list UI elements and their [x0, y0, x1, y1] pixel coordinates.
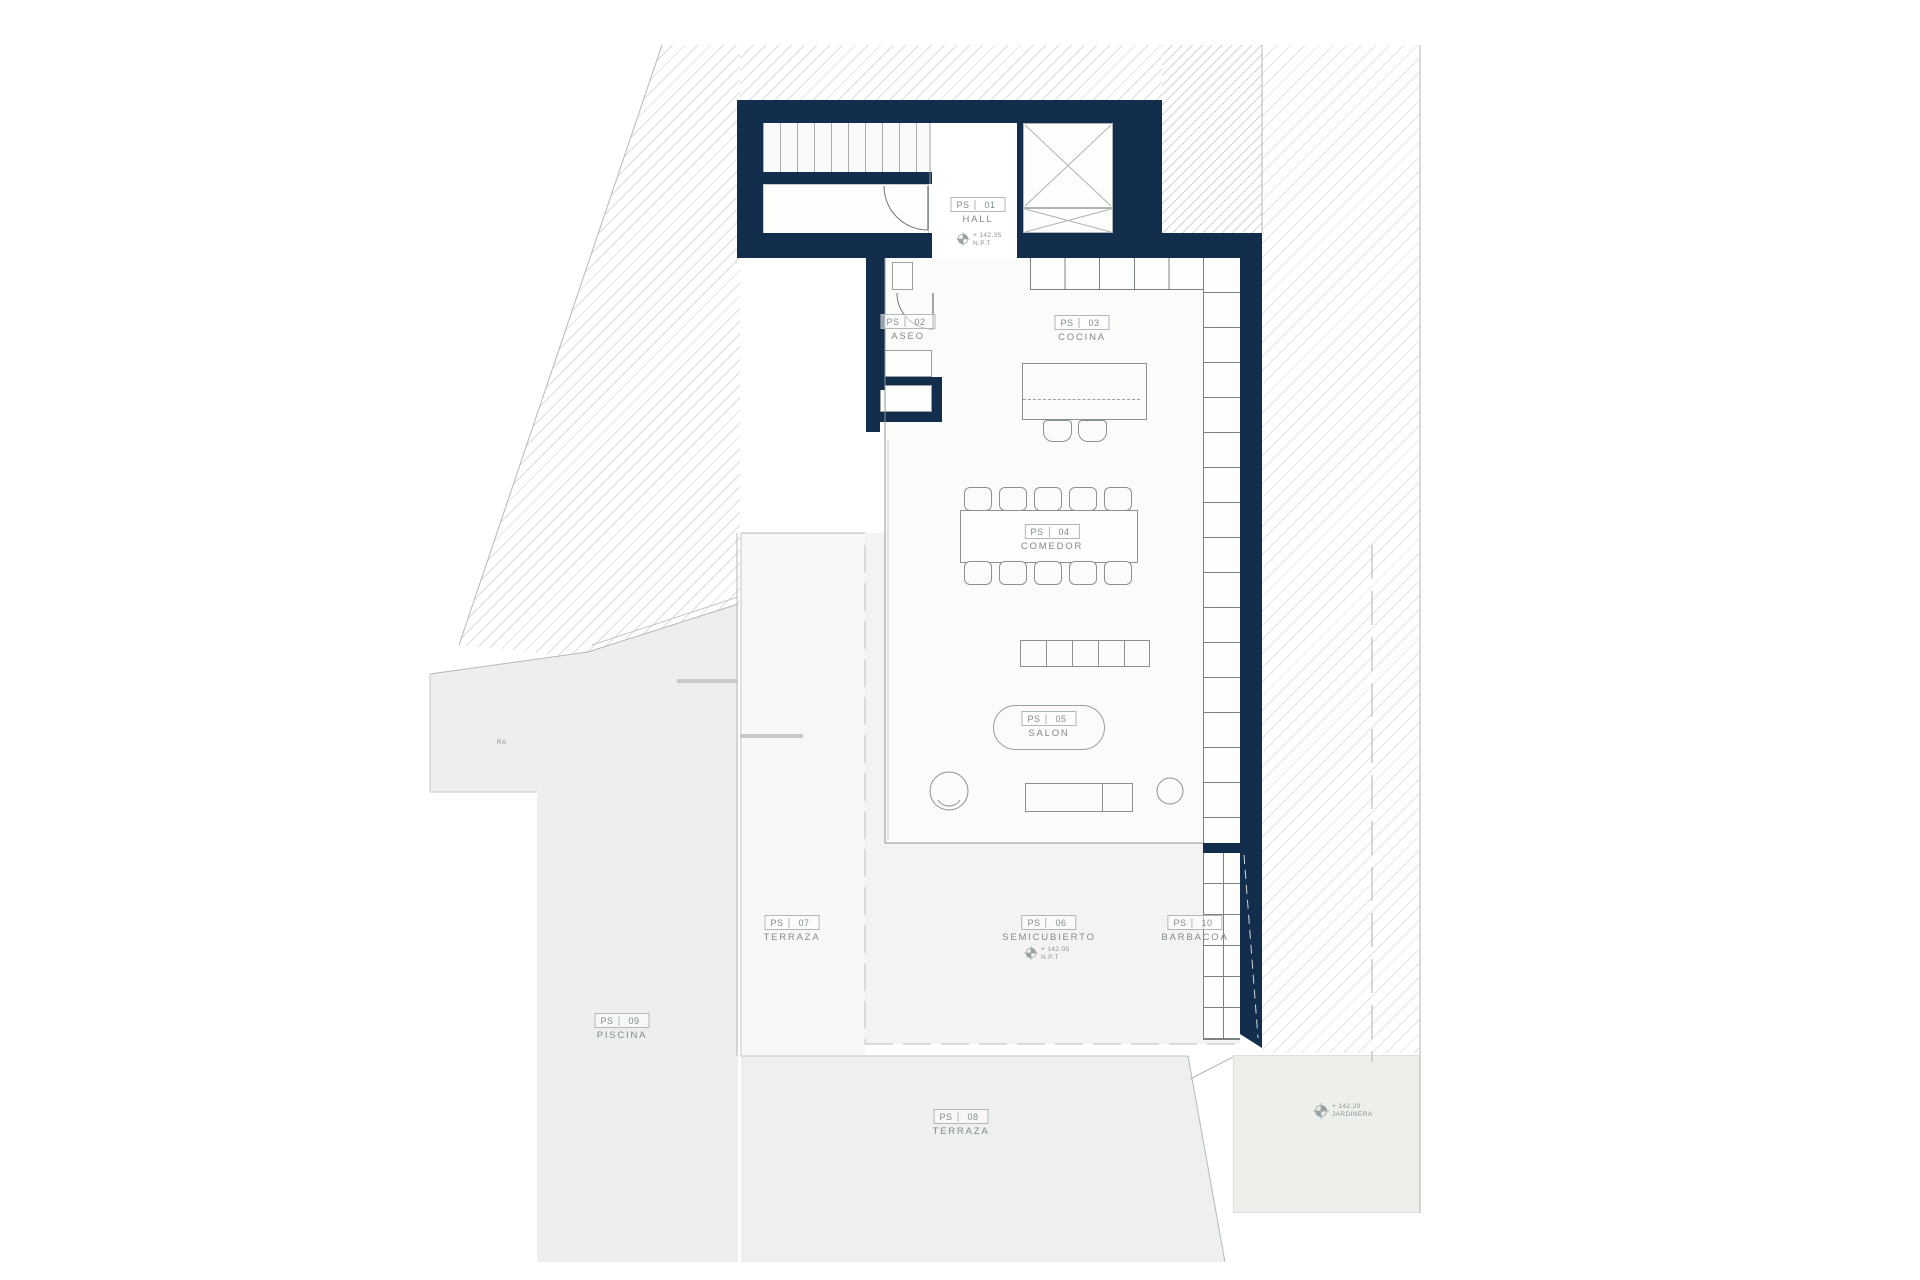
tag-number: 08	[959, 1112, 988, 1122]
level-datum: N.P.T	[973, 240, 1002, 248]
aseo-closet	[880, 385, 932, 412]
level-marker-icon	[956, 232, 970, 246]
room-label-semicubierto: PS06 SEMICUBIERTO	[1002, 915, 1096, 943]
level-value: + 142.05	[1041, 946, 1070, 954]
wall-topblock-bottom	[737, 233, 932, 258]
tag-number: 07	[790, 918, 819, 928]
wall-barbacoa-sill	[1203, 843, 1240, 853]
area-terraza-lower	[741, 1056, 1225, 1262]
room-name: ASEO	[891, 331, 925, 342]
chair	[1104, 561, 1132, 585]
room-name: COCINA	[1058, 332, 1106, 343]
chair	[999, 487, 1027, 511]
chair	[964, 487, 992, 511]
stool	[1043, 420, 1072, 442]
level-datum: N.P.T	[1041, 954, 1070, 962]
tag-code: PS	[1168, 918, 1192, 928]
chair	[1104, 487, 1132, 511]
level-marker-icon	[1024, 946, 1038, 960]
wall-stair-divider	[760, 172, 932, 184]
elevator-pit-box	[1023, 208, 1113, 233]
wall-aseo-mid-band	[866, 377, 942, 385]
room-name: SEMICUBIERTO	[1002, 932, 1096, 943]
wall-top-band	[737, 100, 1162, 123]
chair	[1034, 561, 1062, 585]
room-label-cocina: PS03 COCINA	[1054, 315, 1109, 343]
window-mullion-strip	[1203, 258, 1240, 843]
wall-right-outer	[1240, 258, 1262, 1028]
tag-number: 04	[1050, 527, 1079, 537]
stool	[1078, 420, 1107, 442]
tag-number: 05	[1047, 714, 1076, 724]
site-hatch-inner	[1162, 45, 1262, 233]
tag-number: 02	[906, 317, 935, 327]
wall-aseo-closet-left	[866, 385, 880, 432]
wall-elevator-right	[1113, 123, 1162, 233]
tag-code: PS	[595, 1016, 619, 1026]
jardinera-label-fragment: RA	[497, 740, 506, 746]
staircase	[763, 123, 930, 172]
room-label-comedor: PS04 COMEDOR	[1021, 524, 1083, 552]
sideboard	[1020, 640, 1150, 667]
level-marker-semicubierto: + 142.05 N.P.T	[1024, 946, 1070, 962]
tag-number: 09	[620, 1016, 649, 1026]
room-name: TERRAZA	[933, 1126, 990, 1137]
level-marker-jardinera: + 142.20 JARDINERA	[1313, 1103, 1372, 1119]
site-hatch-left	[430, 45, 740, 660]
level-marker-icon	[1313, 1103, 1329, 1119]
chair	[999, 561, 1027, 585]
tag-code: PS	[1022, 918, 1046, 928]
tag-number: 01	[976, 200, 1005, 210]
barbacoa-grid	[1203, 853, 1240, 1040]
area-terraza-upper	[741, 533, 865, 1056]
room-name: SALON	[1028, 728, 1069, 739]
stair-landing	[763, 184, 929, 235]
wall-right-outer-cut	[1240, 1028, 1262, 1048]
room-label-aseo: PS02 ASEO	[880, 314, 935, 342]
floor-plan: PS01 HALL PS02 ASEO PS03 COCINA PS04 COM…	[0, 0, 1920, 1280]
room-label-salon: PS05 SALON	[1021, 711, 1076, 739]
wall-elevator-left	[1017, 123, 1023, 233]
kitchen-counter	[1030, 258, 1203, 290]
tag-code: PS	[1022, 714, 1046, 724]
level-value: + 142.35	[973, 232, 1002, 240]
room-name: BARBACOA	[1161, 932, 1228, 943]
site-hatch-right	[1262, 45, 1420, 1053]
kitchen-island	[1022, 363, 1147, 420]
tag-code: PS	[1025, 527, 1049, 537]
room-label-barbacoa: PS10 BARBACOA	[1161, 915, 1228, 943]
chair	[1069, 487, 1097, 511]
chair	[1034, 487, 1062, 511]
chair	[964, 561, 992, 585]
room-name: COMEDOR	[1021, 541, 1083, 552]
tag-code: PS	[1055, 318, 1079, 328]
room-label-hall: PS01 HALL	[950, 197, 1005, 225]
room-name: HALL	[963, 214, 994, 225]
room-label-piscina: PS09 PISCINA	[594, 1013, 649, 1041]
room-label-terraza-7: PS07 TERRAZA	[764, 915, 821, 943]
wall-cocina-top-band	[1017, 233, 1262, 258]
site-hatch-top	[740, 45, 1162, 100]
level-marker-hall: + 142.35 N.P.T	[956, 232, 1002, 248]
level-value: + 142.20	[1332, 1103, 1372, 1111]
coffee-table	[1025, 783, 1133, 812]
elevator-shaft	[1023, 123, 1113, 208]
area-piscina	[430, 604, 738, 1262]
room-name: PISCINA	[597, 1030, 648, 1041]
tag-code: PS	[951, 200, 975, 210]
room-label-terraza-8: PS08 TERRAZA	[933, 1109, 990, 1137]
tag-code: PS	[934, 1112, 958, 1122]
chair	[1069, 561, 1097, 585]
tag-code: PS	[881, 317, 905, 327]
tag-code: PS	[765, 918, 789, 928]
tag-number: 10	[1192, 918, 1221, 928]
wall-aseo-bottom-band	[880, 412, 942, 422]
hall-niche	[892, 262, 913, 290]
tag-number: 03	[1080, 318, 1109, 328]
area-jardinera	[1233, 1055, 1420, 1213]
aseo-vanity	[882, 350, 932, 377]
room-name: TERRAZA	[764, 932, 821, 943]
wall-left-upper	[737, 100, 763, 235]
level-label: JARDINERA	[1332, 1111, 1372, 1119]
tag-number: 06	[1046, 918, 1075, 928]
